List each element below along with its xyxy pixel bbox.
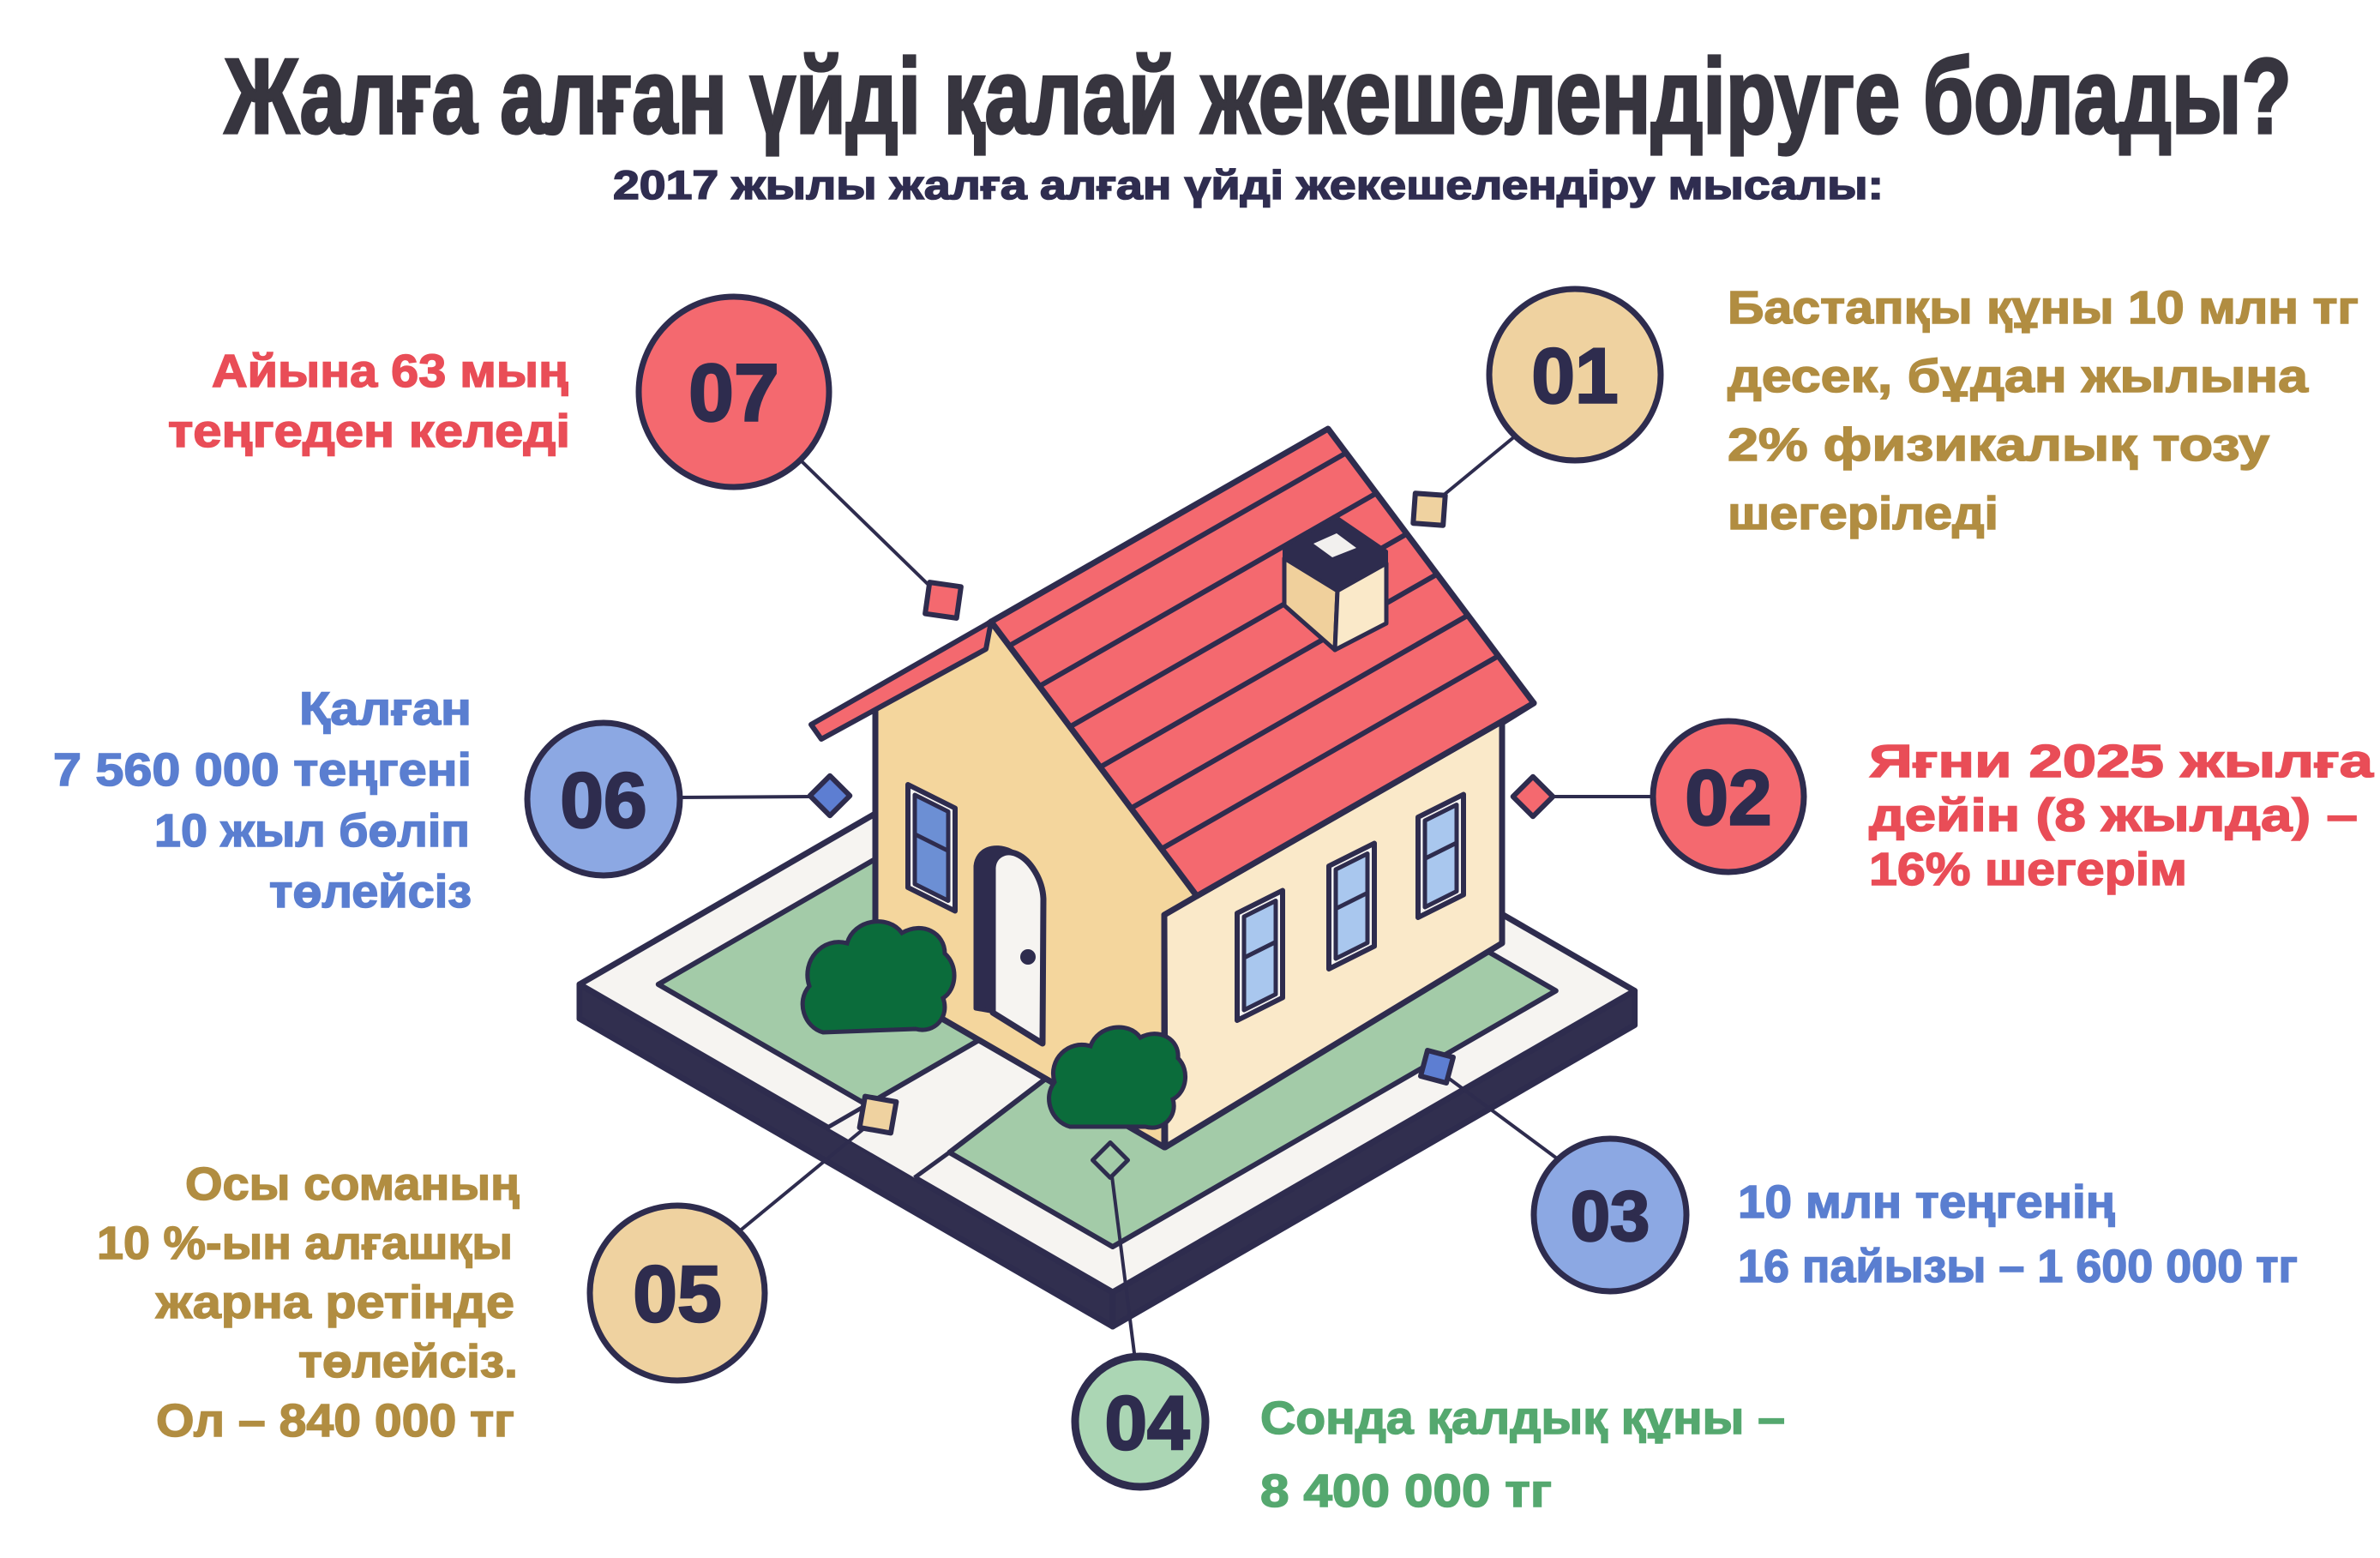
svg-text:03: 03: [1571, 1176, 1650, 1255]
svg-text:02: 02: [1685, 755, 1771, 841]
svg-text:Айына 63 мың теңгеден келеді: Айына 63 мың теңгеден келеді: [168, 346, 581, 457]
svg-text:01: 01: [1531, 333, 1618, 419]
svg-text:Қалған 7 560 000 теңгені 10 жы: Қалған 7 560 000 теңгені 10 жыл бөліп тө…: [53, 683, 484, 917]
svg-text:Сонда қалдық құны – 8 400 000: Сонда қалдық құны – 8 400 000 тг: [1260, 1393, 1798, 1517]
svg-text:Яғни 2025 жылға дейін (8 жылда: Яғни 2025 жылға дейін (8 жылда) – 16% ше…: [1869, 736, 2380, 895]
svg-text:Бастапқы құны 10 млн тг десек,: Бастапқы құны 10 млн тг десек, бұдан жыл…: [1728, 282, 2371, 539]
svg-text:04: 04: [1105, 1380, 1190, 1465]
svg-text:07: 07: [688, 348, 779, 439]
svg-text:06: 06: [560, 757, 646, 844]
svg-text:Жалға алған үйді қалай жекешел: Жалға алған үйді қалай жекешелендіруге б…: [224, 38, 2292, 156]
svg-text:10 млн теңгенің 16 пайызы – 1: 10 млн теңгенің 16 пайызы – 1 600 000 тг: [1738, 1176, 2298, 1292]
svg-text:2017 жылы жалға алған үйді жек: 2017 жылы жалға алған үйді жекешелендіру…: [613, 162, 1884, 208]
svg-text:Осы соманың 10 %-ын алғашқы жа: Осы соманың 10 %-ын алғашқы жарна ретінд…: [97, 1158, 532, 1447]
svg-text:05: 05: [633, 1249, 721, 1338]
